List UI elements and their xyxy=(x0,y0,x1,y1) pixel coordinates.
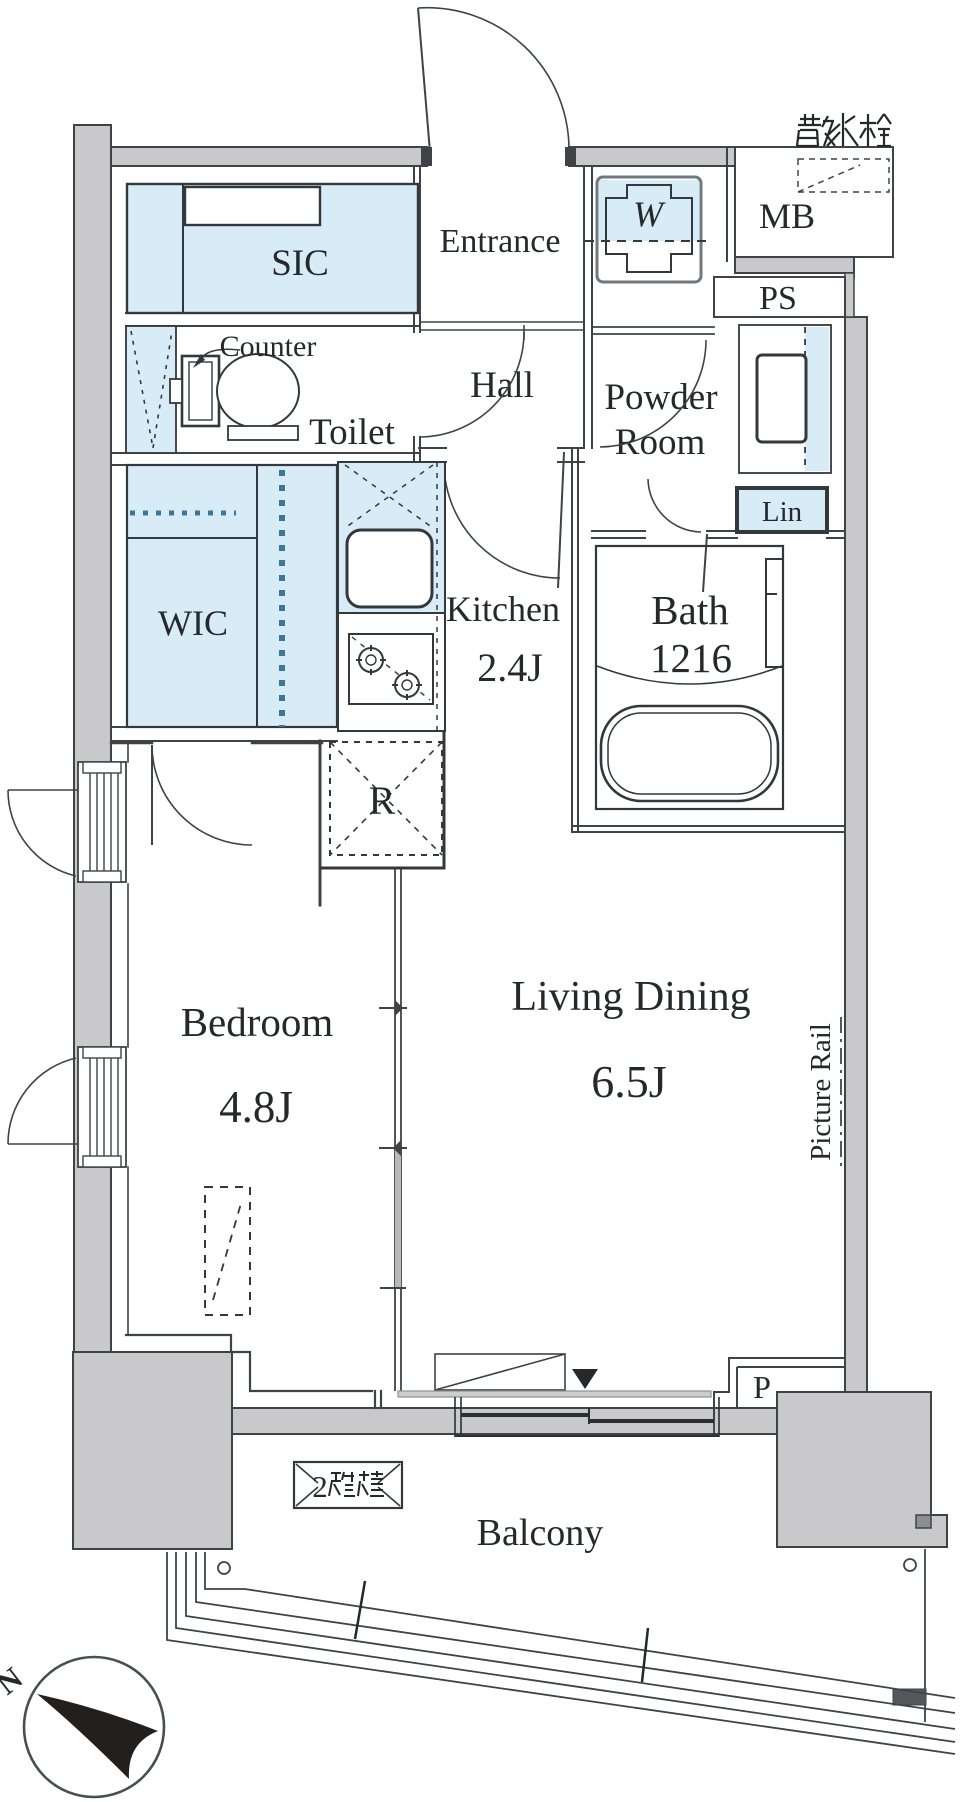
svg-text:Picture Rail: Picture Rail xyxy=(805,1023,837,1161)
svg-text:Lin: Lin xyxy=(762,496,803,528)
svg-text:2: 2 xyxy=(312,1469,328,1504)
svg-text:Counter: Counter xyxy=(220,330,317,363)
svg-text:Entrance: Entrance xyxy=(440,223,561,260)
svg-text:Hall: Hall xyxy=(470,365,534,406)
svg-text:WIC: WIC xyxy=(158,603,228,643)
svg-text:Bath: Bath xyxy=(651,587,728,633)
svg-text:W: W xyxy=(633,194,666,234)
svg-text:R: R xyxy=(369,778,396,823)
svg-text:4.8J: 4.8J xyxy=(219,1082,293,1132)
svg-text:Living Dining: Living Dining xyxy=(511,974,750,1020)
svg-text:6.5J: 6.5J xyxy=(591,1056,666,1107)
svg-text:Bedroom: Bedroom xyxy=(181,999,334,1045)
svg-text:SIC: SIC xyxy=(271,243,329,284)
svg-text:Toilet: Toilet xyxy=(309,412,395,453)
svg-text:Kitchen: Kitchen xyxy=(446,589,560,629)
svg-text:MB: MB xyxy=(759,196,815,236)
svg-text:P: P xyxy=(753,1369,771,1405)
svg-text:Powder: Powder xyxy=(604,377,717,418)
svg-text:2.4J: 2.4J xyxy=(477,645,543,690)
svg-text:Balcony: Balcony xyxy=(477,1512,604,1554)
svg-text:1216: 1216 xyxy=(650,635,732,681)
svg-text:PS: PS xyxy=(759,280,797,317)
